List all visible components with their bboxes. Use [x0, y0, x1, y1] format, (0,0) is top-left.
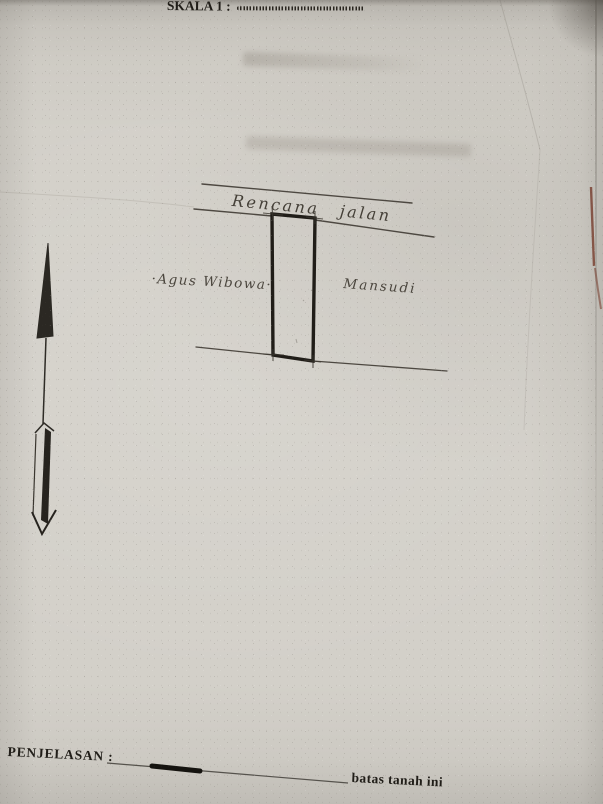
- sketch-canvas: [0, 0, 603, 804]
- scanned-land-sketch-document: SKALA 1 : Rencana jalan ·Agus Wibowa· Ma…: [0, 0, 603, 804]
- scale-label: SKALA 1 :: [167, 0, 231, 14]
- thick-boundary-line-icon: [107, 763, 348, 783]
- scale-dotted-line: [237, 7, 365, 11]
- scale-header: SKALA 1 :: [167, 0, 365, 16]
- paper-crease-lines: [0, 0, 540, 430]
- pencil-specks: [296, 290, 313, 343]
- paper-stain: [591, 187, 601, 309]
- north-arrow-icon: [32, 243, 56, 534]
- land-plot-rectangle: [272, 214, 315, 361]
- south-boundary-line: [196, 347, 447, 371]
